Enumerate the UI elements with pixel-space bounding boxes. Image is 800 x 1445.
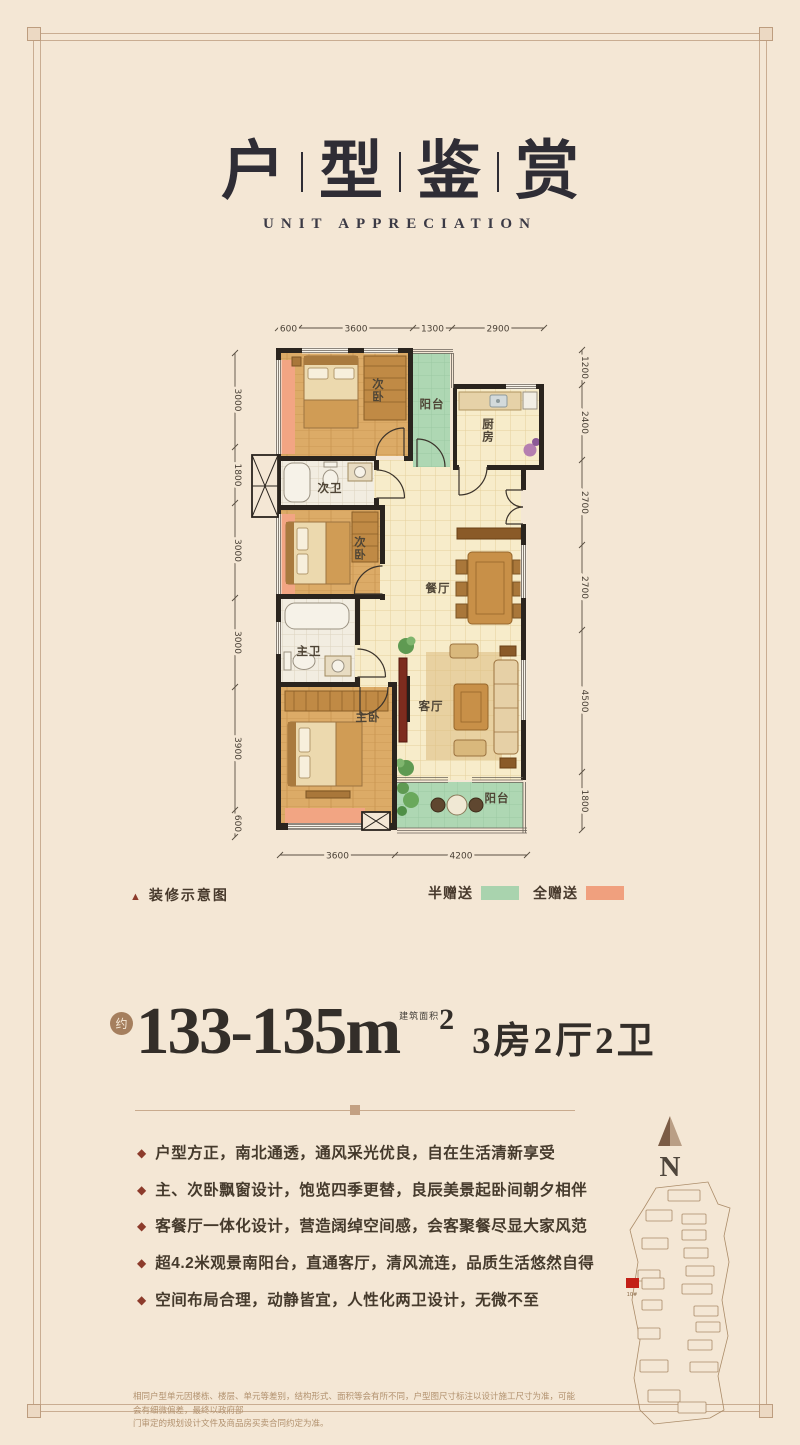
svg-text:主卫: 主卫 [297, 644, 322, 658]
highlighted-building [626, 1278, 639, 1288]
full-gift-swatch [586, 886, 624, 900]
frame-corner-ornament [759, 1404, 773, 1418]
gift-legend: 半赠送 全赠送 [428, 883, 624, 903]
svg-text:1200: 1200 [579, 356, 589, 379]
svg-text:1300: 1300 [421, 325, 444, 335]
svg-text:次卧: 次卧 [371, 377, 385, 403]
poster-page: 户 型 鉴 赏 UNIT APPRECIATION [0, 0, 800, 1445]
area-label: 建筑面积 [399, 1009, 439, 1033]
svg-text:3000: 3000 [232, 539, 242, 562]
list-item: ◆ 客餐厅一体化设计，营造阔绰空间感，会客聚餐尽显大家风范 [137, 1216, 607, 1238]
diamond-bullet-icon: ◆ [137, 1293, 146, 1307]
area-unit: m [345, 998, 399, 1065]
svg-text:3600: 3600 [326, 852, 349, 862]
svg-text:餐厅: 餐厅 [425, 581, 451, 595]
svg-text:次卫: 次卫 [318, 481, 343, 495]
title-char: 户 [221, 140, 285, 204]
page-subtitle: UNIT APPRECIATION [0, 216, 800, 233]
triangle-marker-icon: ▲ [130, 891, 143, 903]
diamond-bullet-icon: ◆ [137, 1146, 146, 1160]
area-headline: 约 133-135 m 建筑面积 2 3房2厅2卫 [110, 998, 657, 1065]
svg-text:客厅: 客厅 [418, 699, 444, 713]
svg-text:4200: 4200 [450, 852, 473, 862]
svg-text:阳台: 阳台 [420, 397, 445, 411]
area-range: 133-135 [136, 998, 345, 1065]
full-gift-bay-master [285, 808, 365, 824]
feature-list: ◆ 户型方正，南北通透，通风采光优良，自在生活清新享受 ◆ 主、次卧飘窗设计，饱… [137, 1143, 607, 1326]
title-char: 赏 [515, 140, 579, 204]
floor-plan: 600 3600 1300 2900 3600 4200 3000 1800 3… [210, 310, 610, 870]
page-title: 户 型 鉴 赏 [221, 140, 579, 204]
title-char: 型 [319, 140, 383, 204]
legend-item-full-gift: 全赠送 [533, 883, 624, 903]
svg-text:3600: 3600 [345, 325, 368, 335]
svg-text:主卧: 主卧 [356, 710, 381, 724]
svg-text:2700: 2700 [579, 576, 589, 599]
svg-text:2700: 2700 [579, 491, 589, 514]
title-separator [399, 152, 401, 192]
list-item: ◆ 超4.2米观景南阳台，直通客厅，清风流连，品质生活悠然自得 [137, 1253, 607, 1275]
svg-text:600: 600 [232, 815, 242, 832]
full-gift-bay-1 [280, 360, 295, 454]
svg-text:3900: 3900 [232, 737, 242, 760]
svg-text:2900: 2900 [487, 325, 510, 335]
disclaimer-line: 门审定的规划设计文件及商品房买卖合同约定为准。 [133, 1417, 583, 1431]
svg-text:1800: 1800 [579, 790, 589, 813]
approx-seal: 约 [110, 1012, 133, 1035]
highlighted-building-label: 10# [627, 1292, 638, 1298]
divider-ornament [350, 1105, 360, 1115]
title-separator [301, 152, 303, 192]
room-layout-text: 3房2厅2卫 [472, 1010, 657, 1064]
svg-text:3000: 3000 [232, 389, 242, 412]
diamond-bullet-icon: ◆ [137, 1256, 146, 1270]
svg-text:2400: 2400 [579, 411, 589, 434]
frame-corner-ornament [27, 1404, 41, 1418]
svg-text:阳台: 阳台 [485, 791, 510, 805]
diamond-bullet-icon: ◆ [137, 1219, 146, 1233]
svg-text:次卧: 次卧 [353, 535, 367, 561]
half-gift-swatch [481, 886, 519, 900]
legend-item-half-gift: 半赠送 [428, 883, 519, 903]
diamond-bullet-icon: ◆ [137, 1183, 146, 1197]
title-separator [497, 152, 499, 192]
header: 户 型 鉴 赏 UNIT APPRECIATION [0, 140, 800, 233]
disclaimer: 相同户型单元因楼栋、楼层、单元等差别，结构形式、面积等会有所不同，户型图尺寸标注… [133, 1390, 583, 1431]
frame-corner-ornament [27, 27, 41, 41]
north-compass-icon: N [648, 1112, 692, 1184]
area-superscript: 建筑面积 2 [399, 1006, 454, 1033]
svg-text:厨房: 厨房 [481, 418, 495, 443]
svg-text:600: 600 [280, 325, 297, 335]
list-item: ◆ 空间布局合理，动静皆宜，人性化两卫设计，无微不至 [137, 1290, 607, 1312]
superscript-two: 2 [439, 1006, 454, 1033]
plan-caption: ▲装修示意图 [130, 885, 229, 905]
list-item: ◆ 主、次卧飘窗设计，饱览四季更替，良辰美景起卧间朝夕相伴 [137, 1180, 607, 1202]
svg-text:4500: 4500 [579, 690, 589, 713]
svg-text:1800: 1800 [232, 464, 242, 487]
site-map: 10# [612, 1178, 757, 1430]
title-char: 鉴 [417, 140, 481, 204]
list-item: ◆ 户型方正，南北通透，通风采光优良，自在生活清新享受 [137, 1143, 607, 1165]
svg-text:3000: 3000 [232, 631, 242, 654]
disclaimer-line: 相同户型单元因楼栋、楼层、单元等差别，结构形式、面积等会有所不同，户型图尺寸标注… [133, 1390, 583, 1417]
frame-corner-ornament [759, 27, 773, 41]
